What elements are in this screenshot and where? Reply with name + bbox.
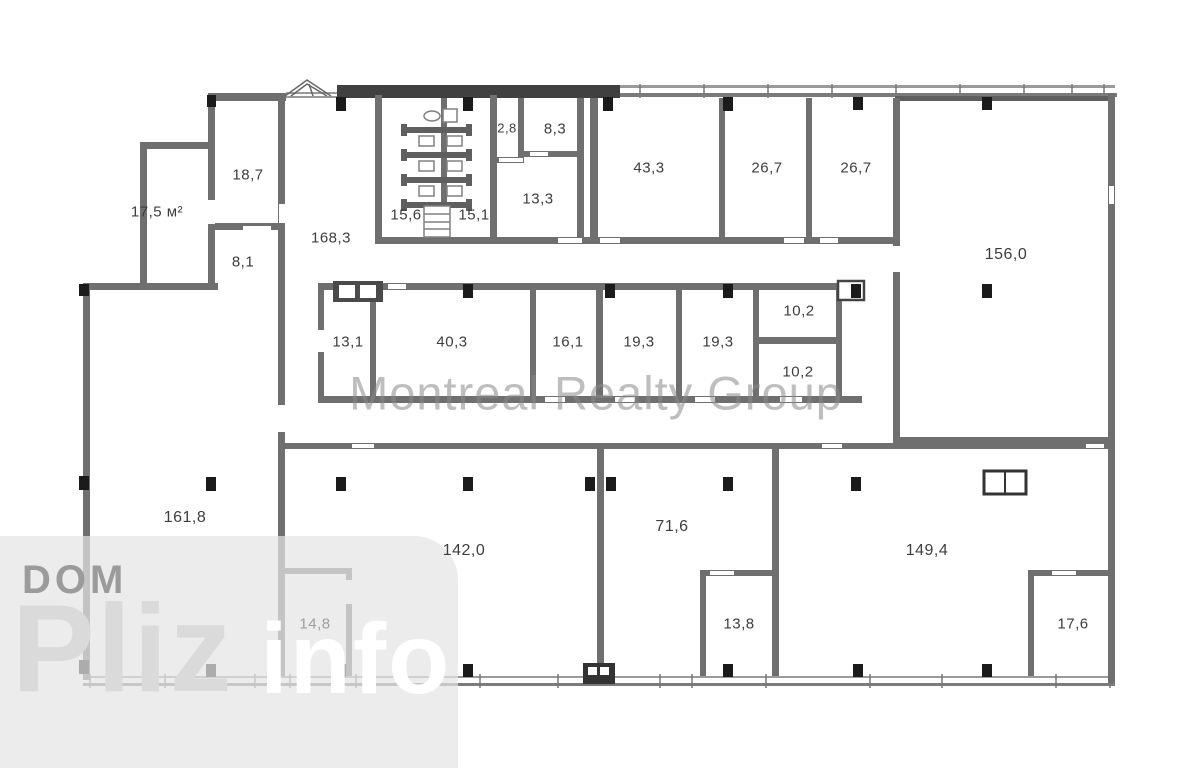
room-label-17-6: 17,6 [1057,616,1088,633]
floor-plan-drawing [0,0,1196,768]
room-label-71-6: 71,6 [655,518,688,536]
room-label-168-3: 168,3 [311,230,351,247]
room-label-156-0: 156,0 [985,246,1028,264]
vent-shaft-bottom [583,663,615,684]
room-label-18-7: 18,7 [232,167,263,184]
room-label-10-2-b: 10,2 [782,364,813,381]
room-label-8-1: 8,1 [232,254,254,271]
room-label-149-4: 149,4 [906,542,949,560]
door-openings [208,152,1114,604]
vent-shaft-149 [984,471,1026,494]
room-label-13-8: 13,8 [723,616,754,633]
room-label-40-3: 40,3 [436,334,467,351]
room-label-13-1: 13,1 [332,334,363,351]
room-label-15-1: 15,1 [458,207,489,224]
room-label-8-3: 8,3 [544,121,566,138]
room-label-14-8: 14,8 [299,616,330,633]
room-label-43-3: 43,3 [633,160,664,177]
room-label-17-5: 17,5 м² [131,204,183,221]
floor-plan-page: Pliz info DOM Montreal Realty Group 18,7… [0,0,1196,768]
room-label-10-2-a: 10,2 [783,303,814,320]
room-label-19-3-b: 19,3 [702,334,733,351]
room-label-161-8: 161,8 [164,509,207,527]
room-label-13-3: 13,3 [522,191,553,208]
room-label-142-0: 142,0 [443,542,486,560]
vent-shaft-left [333,281,383,302]
room-label-15-6: 15,6 [390,207,421,224]
room-label-16-1: 16,1 [552,334,583,351]
room-label-26-7-b: 26,7 [840,160,871,177]
room-label-19-3-a: 19,3 [623,334,654,351]
room-label-2-8: 2,8 [497,121,517,136]
room-label-26-7-a: 26,7 [751,160,782,177]
